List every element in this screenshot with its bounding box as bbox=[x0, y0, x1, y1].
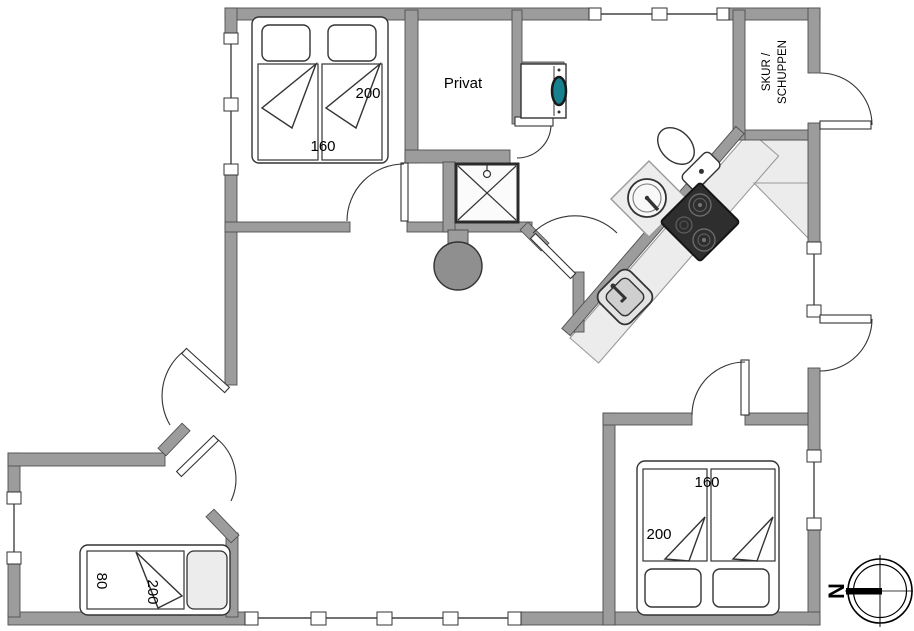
floorplan-drawing: N Privat SKUR / SCHUPPEN 200 160 80 200 … bbox=[0, 0, 914, 631]
floorplan-page: N Privat SKUR / SCHUPPEN 200 160 80 200 … bbox=[0, 0, 914, 631]
bed3-length-label: 200 bbox=[646, 526, 671, 543]
door-private-room bbox=[515, 117, 553, 158]
door-hall-upper bbox=[162, 348, 229, 425]
shed-label-line2: SCHUPPEN bbox=[777, 40, 789, 104]
north-needle-icon bbox=[846, 588, 882, 595]
compass-north-label: N bbox=[824, 583, 849, 599]
pillow bbox=[262, 25, 310, 61]
bed2-width-label: 80 bbox=[93, 573, 110, 590]
compass: N bbox=[824, 555, 913, 627]
bed2-length-label: 200 bbox=[144, 579, 161, 604]
fireplace bbox=[434, 230, 482, 290]
door-entrance-exterior bbox=[820, 315, 872, 371]
door-bedroom-bottom-left bbox=[177, 436, 236, 502]
private-room-label: Privat bbox=[444, 75, 483, 92]
shower bbox=[456, 164, 518, 222]
shed-label-line1: SKUR / bbox=[761, 52, 773, 91]
door-bedroom-top-left bbox=[347, 163, 408, 221]
bed1-length-label: 200 bbox=[355, 85, 380, 102]
pillow bbox=[328, 25, 376, 61]
pillow bbox=[645, 569, 701, 607]
door-shed-exterior bbox=[820, 73, 872, 129]
washing-machine bbox=[521, 64, 566, 118]
bed1-width-label: 160 bbox=[310, 138, 335, 155]
bed3-width-label: 160 bbox=[694, 474, 719, 491]
door-bedroom-bottom-right bbox=[692, 360, 749, 415]
washer-door-icon bbox=[552, 77, 566, 105]
pillow bbox=[187, 551, 227, 609]
pillow bbox=[713, 569, 769, 607]
door-bathroom bbox=[531, 216, 618, 279]
